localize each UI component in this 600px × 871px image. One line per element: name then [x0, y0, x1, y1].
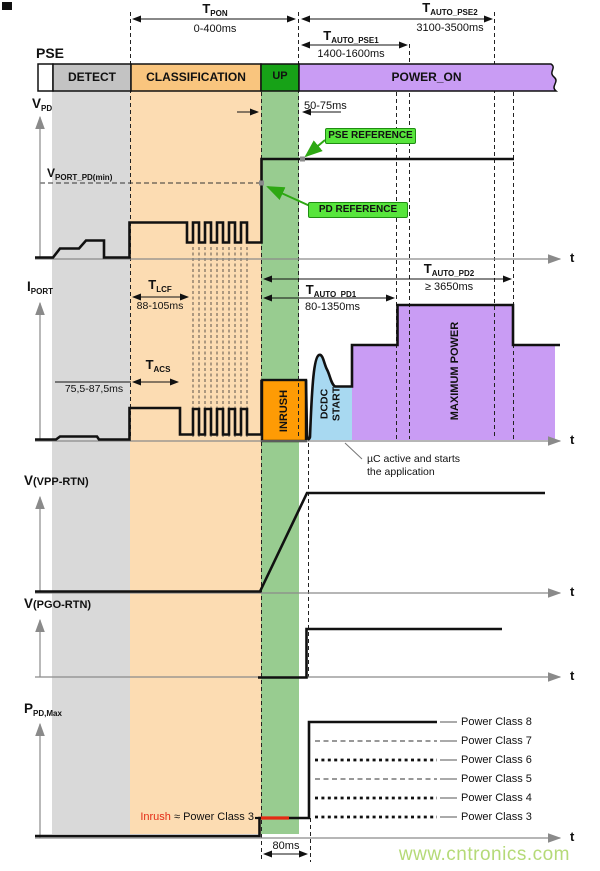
- maximum-power-label: MAXIMUM POWER: [449, 322, 461, 420]
- t-auto-pse2-range: 3100-3500ms: [398, 22, 502, 34]
- band-up: [261, 91, 299, 834]
- power-class-5-label: Power Class 5: [461, 773, 532, 785]
- bar-seg-blank: [38, 64, 53, 91]
- t-acs-range: 75,5-87,5ms: [55, 384, 133, 396]
- pd-reference-callout: PD REFERENCE: [308, 202, 408, 218]
- bar-label-detect: DETECT: [53, 70, 131, 84]
- vpgo-axis-label: V(PGO-RTN): [24, 597, 91, 612]
- t-auto-pse2-label: TAUTO_PSE2: [398, 1, 502, 18]
- vpgo-t-axis-label: t: [570, 668, 574, 683]
- dcdc-start-label: DCDCSTART: [320, 387, 343, 421]
- vport-pd-min-label: VPORT_PD(min): [47, 167, 112, 183]
- iport-t-axis-label: t: [570, 432, 574, 447]
- ppdmax-t-axis-label: t: [570, 829, 574, 844]
- pse-reference-dot: [300, 157, 305, 162]
- pse-bar-title: PSE: [36, 46, 64, 61]
- t-auto-pd1-label: TAUTO_PD1: [275, 283, 387, 300]
- t-inrush-range: 80ms: [262, 840, 310, 852]
- vpd-t-axis-label: t: [570, 250, 574, 265]
- pse-reference-callout: PSE REFERENCE: [325, 128, 416, 144]
- power-class-6-label: Power Class 6: [461, 754, 532, 766]
- vpd-axis-label: VPD: [32, 97, 52, 114]
- power-class-label-ticks: [440, 722, 457, 817]
- watermark: www.cntronics.com: [390, 844, 570, 866]
- power-class-4-label: Power Class 4: [461, 792, 532, 804]
- uc-active-note: µC active and startsthe application: [367, 453, 460, 479]
- t-acs-label: TACS: [133, 358, 183, 375]
- band-detect: [52, 91, 130, 834]
- power-class-lines: [315, 722, 457, 817]
- t-auto-pd2-range: ≥ 3650ms: [399, 281, 499, 293]
- power-class-3-label: Power Class 3: [461, 811, 532, 823]
- t-auto-pse1-label: TAUTO_PSE1: [295, 29, 407, 46]
- t-auto-pse1-range: 1400-1600ms: [295, 48, 407, 60]
- vvpp-t-axis-label: t: [570, 584, 574, 599]
- t-lcf-range: 88-105ms: [131, 301, 189, 313]
- power-class-7-label: Power Class 7: [461, 735, 532, 747]
- band-classification: [130, 91, 261, 834]
- inrush-note: Inrush ≈ Power Class 3: [136, 811, 254, 823]
- t-pon-range: 0-400ms: [165, 23, 265, 35]
- bar-label-classification: CLASSIFICATION: [131, 70, 261, 84]
- inrush-region-label: INRUSH: [278, 390, 290, 432]
- corner-mark: [2, 2, 12, 10]
- poe-timing-diagram: PSE DETECT CLASSIFICATION UP POWER_ON TP…: [0, 0, 600, 871]
- uc-leader-line: [345, 443, 362, 459]
- pd-reference-dot: [259, 181, 264, 186]
- t-lcf-label: TLCF: [135, 278, 185, 295]
- t-pon-label: TPON: [165, 2, 265, 19]
- t-up-range: 50-75ms: [304, 100, 347, 112]
- bar-label-up: UP: [261, 70, 299, 82]
- bar-label-power-on: POWER_ON: [299, 70, 554, 84]
- t-auto-pd1-range: 80-1350ms: [280, 301, 385, 313]
- power-class-8-label: Power Class 8: [461, 716, 532, 728]
- ppdmax-axis-label: PPD,Max: [24, 702, 62, 719]
- iport-axis-label: IPORT: [27, 280, 53, 297]
- t-auto-pd2-label: TAUTO_PD2: [399, 262, 499, 279]
- vvpp-axis-label: V(VPP-RTN): [24, 474, 89, 489]
